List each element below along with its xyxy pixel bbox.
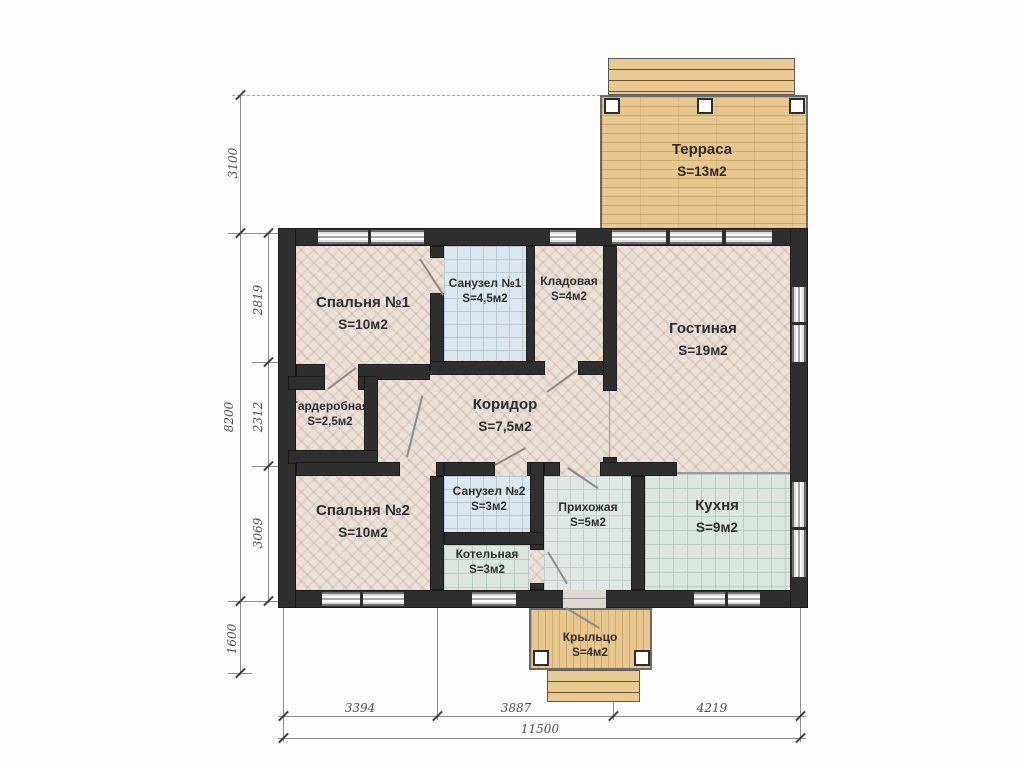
- room-area-wardrobe: S=2,5м2: [291, 416, 369, 429]
- extension-line: [228, 233, 278, 234]
- room-label-storage: Кладовая S=4м2: [540, 275, 597, 304]
- entrance-opening: [563, 590, 606, 608]
- room-label-kitchen: Кухня S=9м2: [695, 497, 739, 536]
- window: [472, 592, 516, 606]
- room-area-boiler: S=3м2: [456, 564, 519, 577]
- porch-post: [533, 650, 549, 666]
- dim-label-8200: 8200: [222, 402, 236, 433]
- dim-label-3100: 3100: [226, 148, 240, 179]
- terrace-steps: [608, 58, 795, 95]
- window-mullion: [792, 527, 806, 530]
- room-label-hallway: Прихожая S=5м2: [558, 501, 617, 530]
- open-boundary-living-kitchen: [677, 472, 790, 474]
- extension-line: [283, 608, 284, 742]
- window-terrace-glazing: [612, 230, 772, 244]
- dim-label-3069: 3069: [251, 518, 265, 549]
- room-name-bedroom2: Спальня №2: [316, 502, 410, 519]
- room-area-bath2: S=3м2: [453, 501, 526, 514]
- wall-segment: [603, 246, 617, 391]
- room-name-porch: Крыльцо: [563, 631, 618, 645]
- room-label-bath2: Санузел №2 S=3м2: [453, 485, 526, 514]
- window-mullion: [666, 230, 670, 244]
- wall-segment: [444, 532, 544, 545]
- room-area-bedroom2: S=10м2: [316, 525, 410, 541]
- opening-corridor-living: [609, 391, 610, 457]
- wall-segment: [430, 246, 444, 258]
- window-mullion: [725, 592, 728, 606]
- room-label-corridor: Коридор S=7,5м2: [473, 396, 538, 435]
- extension-line: [228, 601, 278, 602]
- wall-segment: [436, 462, 444, 476]
- room-area-corridor: S=7,5м2: [473, 419, 538, 435]
- dim-label-1600: 1600: [225, 624, 239, 655]
- entrance-threshold: [563, 598, 606, 599]
- room-area-porch: S=4м2: [563, 647, 618, 660]
- room-name-living: Гостиная: [669, 320, 737, 337]
- wall-segment: [444, 462, 495, 476]
- extension-line: [232, 95, 600, 96]
- room-label-bedroom1: Спальня №1 S=10м2: [316, 294, 410, 333]
- room-label-porch: Крыльцо S=4м2: [563, 631, 618, 660]
- porch-post: [634, 650, 650, 666]
- room-label-bedroom2: Спальня №2 S=10м2: [316, 502, 410, 541]
- room-area-bedroom1: S=10м2: [316, 317, 410, 333]
- room-name-kitchen: Кухня: [695, 497, 739, 514]
- extension-line: [800, 608, 801, 742]
- window: [322, 592, 404, 606]
- room-name-storage: Кладовая: [540, 275, 597, 289]
- room-name-bath1: Санузел №1: [449, 277, 522, 291]
- wall-segment: [296, 462, 400, 476]
- wall-segment: [631, 476, 645, 590]
- room-label-terrace: Терраса S=13м2: [672, 141, 732, 180]
- dim-label-2819: 2819: [251, 285, 265, 316]
- room-name-bedroom1: Спальня №1: [316, 294, 410, 311]
- room-label-living: Гостиная S=19м2: [669, 320, 737, 359]
- window: [550, 230, 576, 244]
- wall-segment: [526, 246, 535, 375]
- room-area-bath1: S=4,5м2: [449, 293, 522, 306]
- dim-label-4219: 4219: [697, 701, 728, 715]
- terrace-post: [697, 98, 713, 114]
- dimension-line-bottom-total: [278, 738, 806, 739]
- room-name-terrace: Терраса: [672, 141, 732, 158]
- window-mullion: [792, 322, 806, 325]
- room-name-corridor: Коридор: [473, 396, 538, 413]
- dim-label-3887: 3887: [501, 701, 532, 715]
- wall-segment: [430, 476, 444, 590]
- wall-segment: [544, 462, 560, 476]
- room-area-living: S=19м2: [669, 343, 737, 359]
- extension-line: [437, 608, 438, 720]
- dimension-line-bottom: [278, 716, 806, 717]
- floor-plan: 3100 8200 2819 2312 3069 1600 3394 3887 …: [0, 0, 1024, 768]
- dimension-line-left-inner: [268, 233, 269, 603]
- room-name-bath2: Санузел №2: [453, 485, 526, 499]
- room-name-wardrobe: Гардеробная: [291, 400, 369, 414]
- terrace-post: [604, 98, 620, 114]
- room-name-hallway: Прихожая: [558, 501, 617, 515]
- porch-steps: [547, 670, 640, 702]
- wall-segment: [288, 376, 325, 390]
- wall-segment: [530, 583, 544, 590]
- room-name-boiler: Котельная: [456, 548, 519, 562]
- window-mullion: [368, 230, 371, 244]
- dim-label-3394: 3394: [345, 701, 376, 715]
- room-area-kitchen: S=9м2: [695, 520, 739, 536]
- dim-label-2312: 2312: [251, 402, 265, 433]
- window-mullion: [722, 230, 726, 244]
- room-area-terrace: S=13м2: [672, 164, 732, 180]
- window: [318, 230, 424, 244]
- room-area-hallway: S=5м2: [558, 517, 617, 530]
- room-area-storage: S=4м2: [540, 291, 597, 304]
- wall-segment: [430, 361, 545, 375]
- wall-segment: [600, 462, 677, 476]
- dimension-line-left-outer: [240, 95, 241, 675]
- room-label-wardrobe: Гардеробная S=2,5м2: [291, 400, 369, 429]
- dim-label-11500: 11500: [521, 722, 559, 736]
- floor-hallway: [544, 476, 631, 590]
- room-label-bath1: Санузел №1 S=4,5м2: [449, 277, 522, 306]
- window-mullion: [360, 592, 363, 606]
- room-label-boiler: Котельная S=3м2: [456, 548, 519, 577]
- terrace-post: [789, 98, 805, 114]
